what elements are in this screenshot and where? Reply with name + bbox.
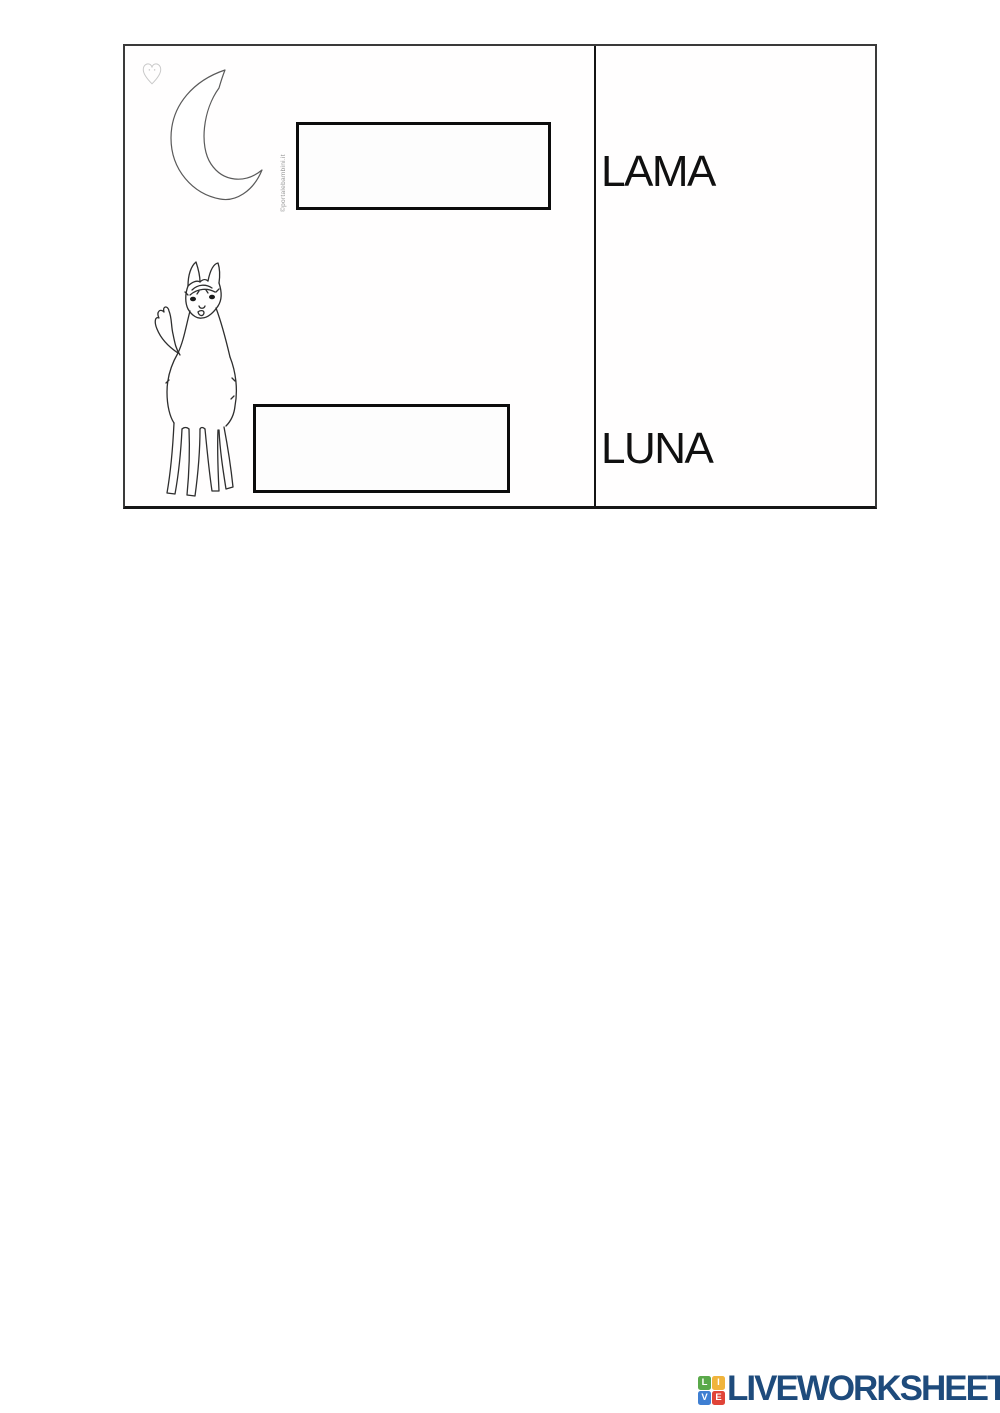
word-luna[interactable]: LUNA <box>601 427 712 471</box>
llama-image <box>140 260 244 500</box>
logo-square-e: E <box>712 1391 725 1405</box>
liveworksheets-logo-icon: L I V E <box>698 1376 725 1405</box>
liveworksheets-logo[interactable]: L I V E LIVEWORKSHEETS <box>698 1371 1000 1406</box>
logo-square-l: L <box>698 1376 711 1390</box>
crescent-moon-image <box>165 66 267 204</box>
moon-answer-input[interactable] <box>296 122 551 210</box>
heart-icon <box>142 62 162 86</box>
copyright-watermark: ©portalebambini.it <box>280 122 287 212</box>
liveworksheets-wordmark: LIVEWORKSHEETS <box>727 1371 1000 1406</box>
column-divider <box>594 46 596 506</box>
word-lama[interactable]: LAMA <box>601 150 715 194</box>
logo-square-v: V <box>698 1391 711 1405</box>
llama-answer-input[interactable] <box>253 404 510 493</box>
logo-square-i: I <box>712 1376 725 1390</box>
worksheet-panel: ©portalebambini.it LAMA LUNA <box>123 44 877 509</box>
